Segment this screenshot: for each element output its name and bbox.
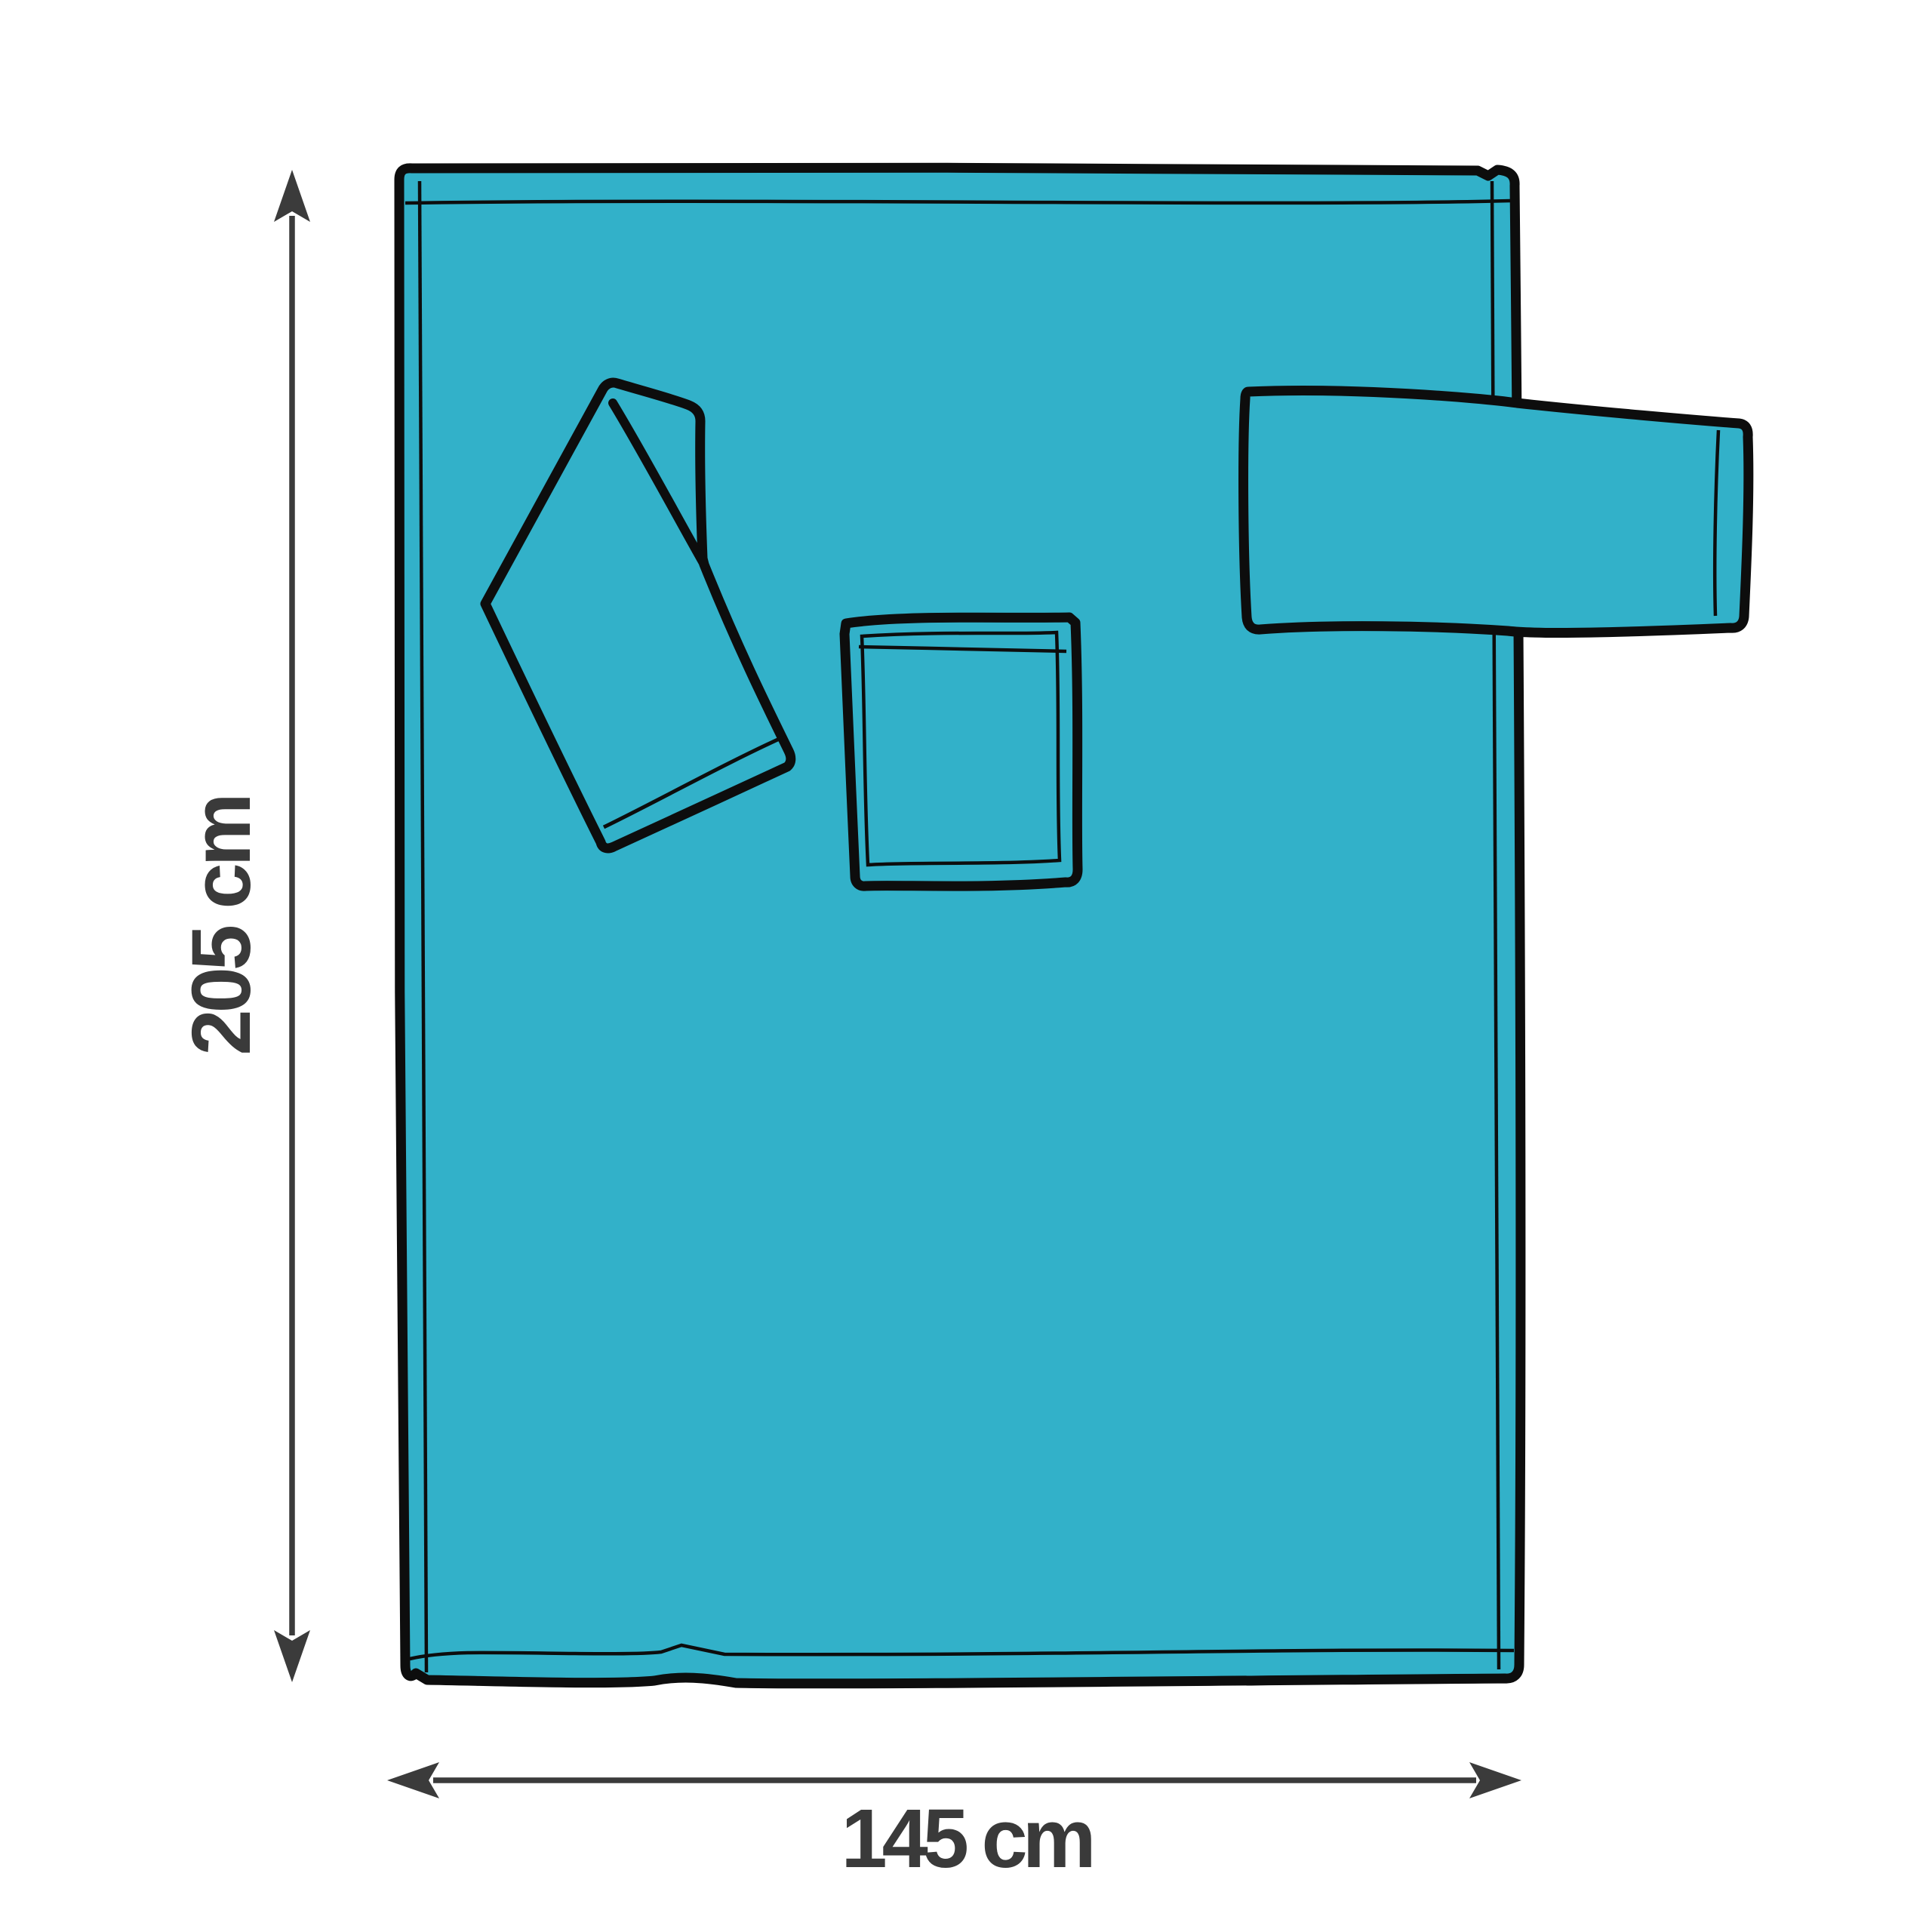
svg-text:205 cm: 205 cm (175, 796, 268, 1055)
svg-text:145 cm: 145 cm (841, 1792, 1091, 1885)
